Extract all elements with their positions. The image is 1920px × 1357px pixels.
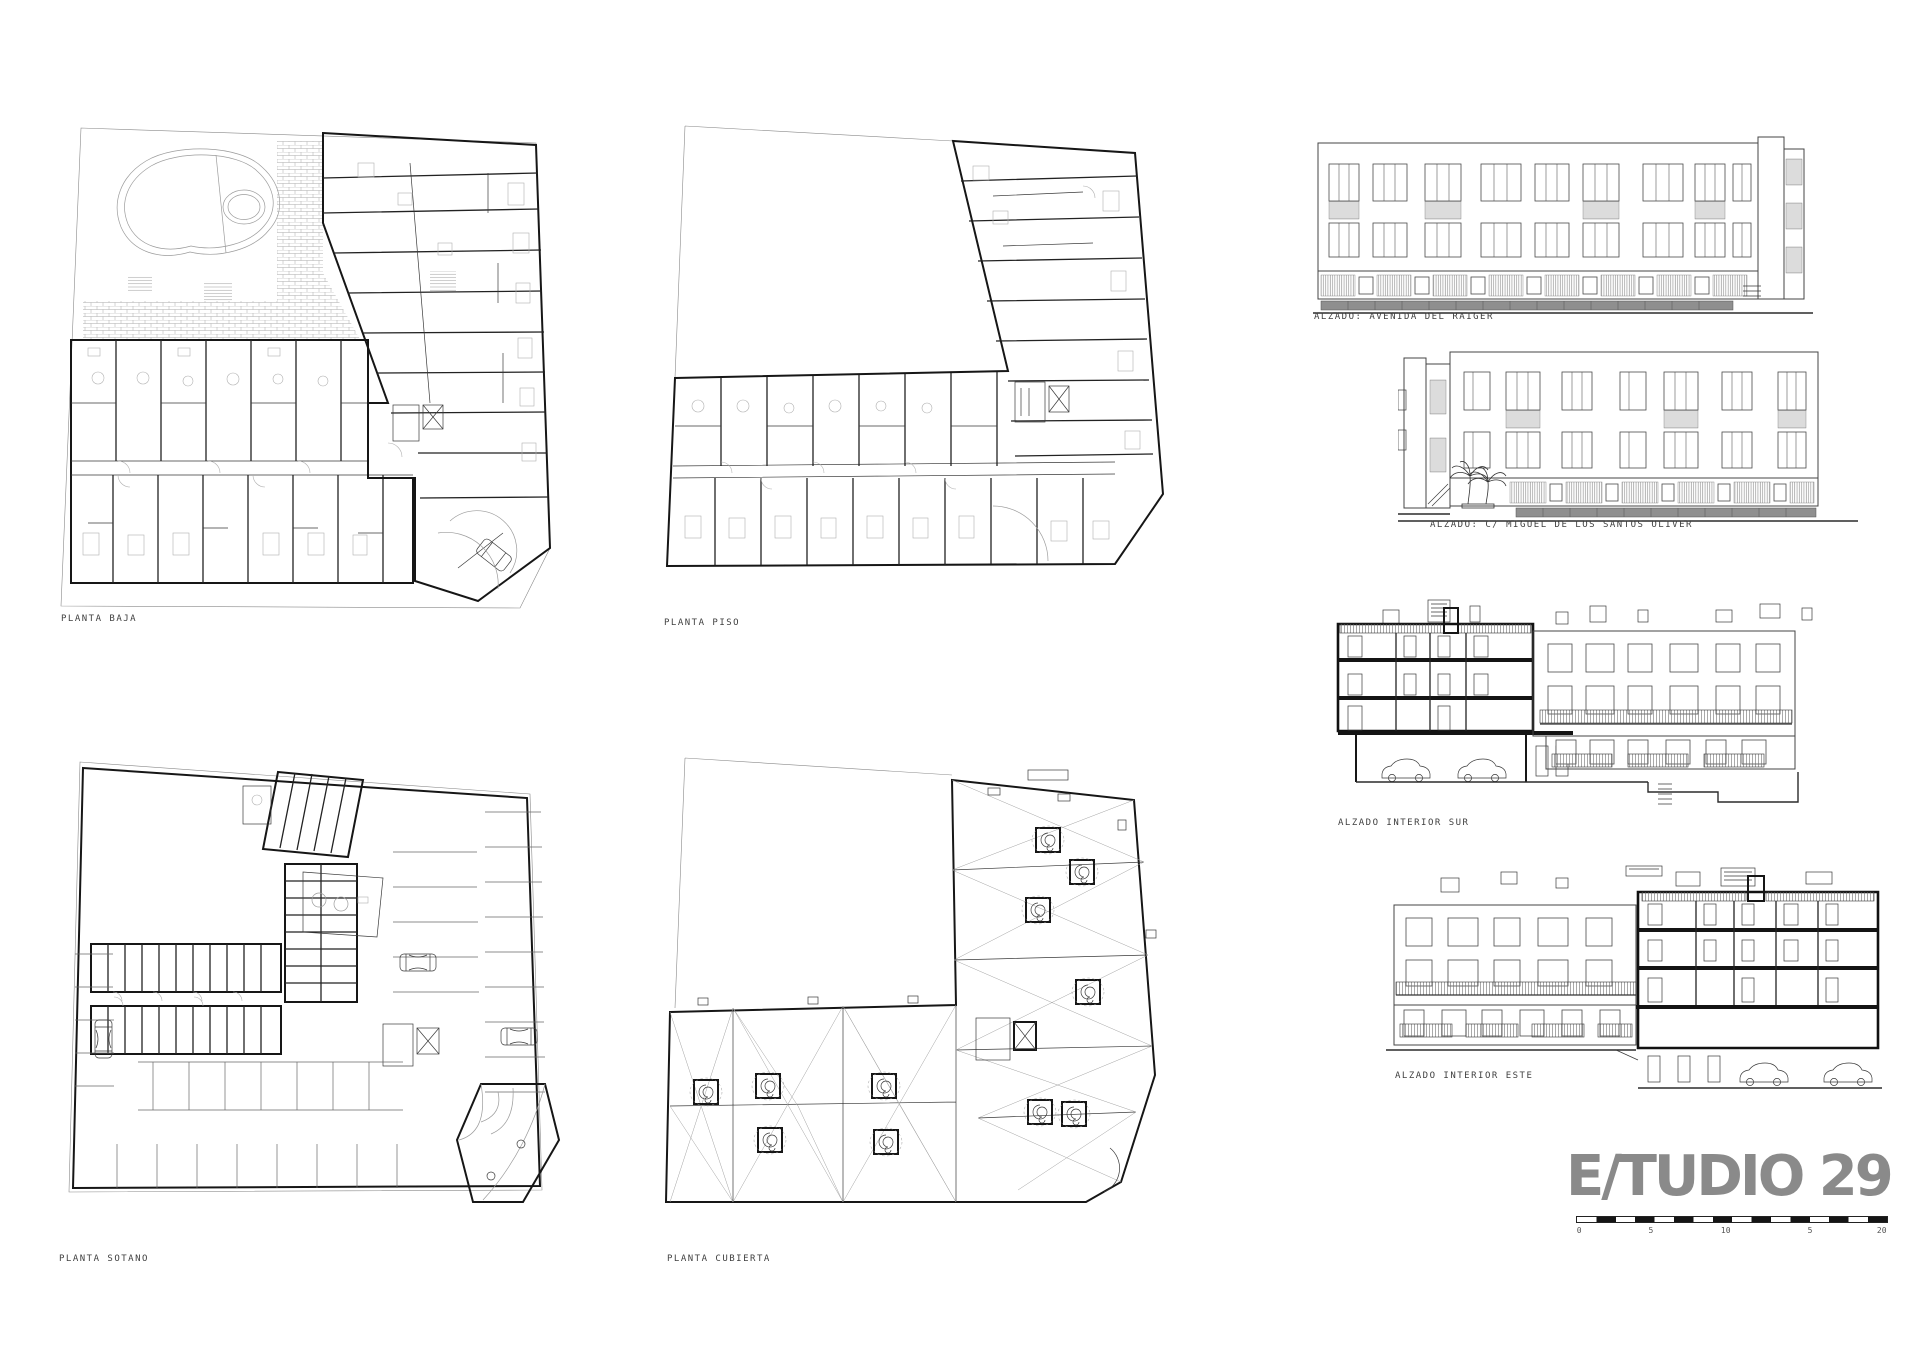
planta-piso-label: PLANTA PISO <box>664 618 740 628</box>
scale-tick-label: 0 <box>1577 1226 1582 1235</box>
planta-sotano-drawing <box>53 752 608 1249</box>
roof-chimneys <box>1441 866 1832 892</box>
stair-core-icon <box>1015 382 1069 422</box>
basement-perimeter <box>73 768 540 1188</box>
planta-cubierta-drawing <box>658 750 1223 1242</box>
roof-chimneys <box>1383 600 1812 624</box>
window-row-lower <box>1464 432 1806 468</box>
scale-bar-labels: 0 5 10 5 20 <box>1576 1226 1888 1238</box>
parking-stalls <box>75 812 545 1188</box>
scale-tick-label: 10 <box>1721 1226 1731 1235</box>
street-fence <box>1516 508 1816 517</box>
car-icon <box>1824 1063 1872 1086</box>
window-row-upper <box>1329 164 1751 201</box>
drawing-sheet: PLANTA BAJA <box>0 0 1920 1357</box>
pool-icon <box>117 149 280 256</box>
roof-outline <box>666 780 1155 1202</box>
ground-floor-band <box>1450 478 1818 506</box>
site-boundary <box>675 758 952 1008</box>
stair-core-icon <box>393 405 443 441</box>
scale-tick-label: 20 <box>1877 1226 1887 1235</box>
alzado-interior-sur-drawing <box>1328 586 1868 826</box>
car-icon <box>1382 759 1430 782</box>
ground-floor-band <box>1318 271 1758 299</box>
spiral-stair-icons <box>690 826 1104 1156</box>
window-row-lower <box>1329 223 1751 257</box>
entry-arc <box>993 506 1048 561</box>
planta-baja-drawing <box>58 103 603 615</box>
palm-tree-icon <box>1450 462 1506 508</box>
building-section <box>1338 608 1573 735</box>
window-row-upper <box>1464 372 1806 410</box>
scale-tick-label: 5 <box>1648 1226 1653 1235</box>
side-tower <box>1743 137 1804 299</box>
alzado-avenida-label: ALZADO: AVENIDA DEL RAIGER <box>1314 312 1494 322</box>
alzado-miguel-label: ALZADO: C/ MIGUEL DE LOS SANTOS OLIVER <box>1430 520 1693 530</box>
scale-tick-label: 5 <box>1808 1226 1813 1235</box>
brick-paving <box>83 141 456 341</box>
floor-plan-l-block <box>667 141 1163 566</box>
roof-slope-diagonals <box>670 780 1152 1202</box>
car-icon <box>1458 759 1506 782</box>
street-fence <box>1321 301 1733 310</box>
louver-blocks <box>1506 410 1806 428</box>
car-icon <box>1740 1063 1788 1086</box>
alzado-avenida-drawing <box>1313 131 1820 318</box>
louver-blocks <box>1329 201 1725 219</box>
stepped-terrain <box>1648 772 1798 804</box>
planta-cubierta-label: PLANTA CUBIERTA <box>667 1254 771 1264</box>
alzado-interior-este-label: ALZADO INTERIOR ESTE <box>1395 1071 1533 1081</box>
car-icon <box>400 954 436 971</box>
apartment-wing-east <box>323 133 550 601</box>
site-boundary <box>675 126 953 378</box>
roof-chimneys <box>698 770 1156 1005</box>
furniture-hints <box>685 166 1140 541</box>
roof-curved-edge <box>1104 1148 1120 1192</box>
interior-elevation <box>1533 631 1795 769</box>
planta-sotano-label: PLANTA SOTANO <box>59 1254 149 1264</box>
side-tower <box>1398 358 1450 508</box>
studio-logo: E/TUDIO 29 <box>1566 1146 1886 1208</box>
car-icon <box>501 1028 537 1045</box>
stair-core-icon <box>976 1018 1036 1060</box>
planta-piso-drawing <box>663 96 1233 616</box>
car-icon <box>95 1020 112 1058</box>
stair-core-icon <box>383 1024 439 1066</box>
ramp-icon <box>457 1084 559 1202</box>
site-boundary <box>69 762 542 1192</box>
car-icon <box>475 537 513 572</box>
alzado-interior-este-drawing <box>1386 860 1882 1092</box>
alzado-miguel-drawing <box>1398 346 1876 528</box>
interior-elevation <box>1386 905 1636 1050</box>
basement-section <box>1616 1050 1882 1088</box>
scale-bar <box>1576 1216 1888 1223</box>
storage-rooms-rows <box>91 944 281 1054</box>
alzado-interior-sur-label: ALZADO INTERIOR SUR <box>1338 818 1469 828</box>
utility-room <box>303 872 383 937</box>
planta-baja-label: PLANTA BAJA <box>61 614 137 624</box>
storage-rooms-diagonal <box>243 772 363 857</box>
building-section <box>1636 876 1878 1048</box>
